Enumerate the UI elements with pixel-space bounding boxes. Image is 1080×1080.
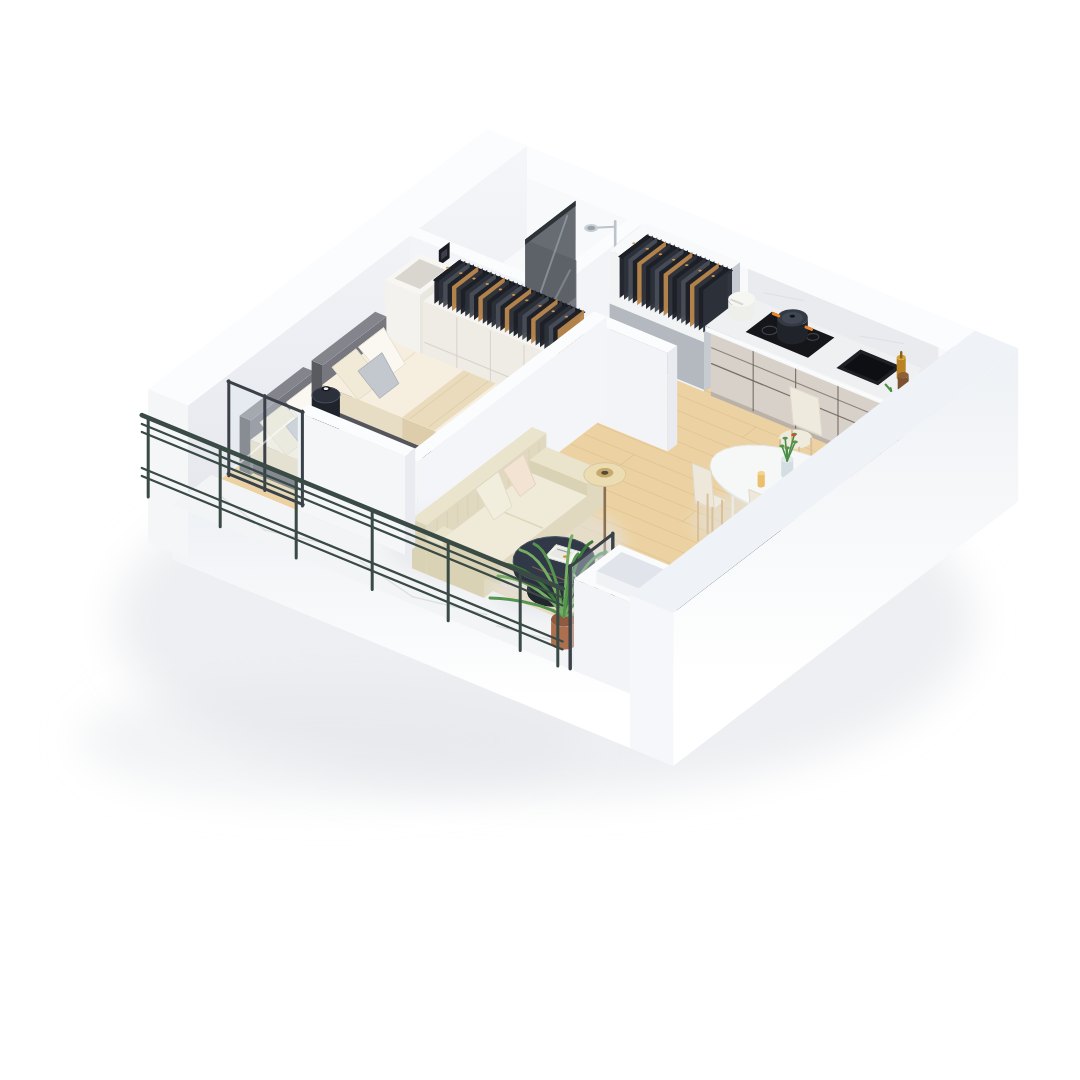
bread-bin (728, 292, 755, 321)
floor-plan-figure (0, 0, 1080, 1080)
cooking-pot (773, 309, 811, 344)
juice-glass (758, 471, 765, 487)
floor-plan-page (0, 0, 1080, 1080)
floor-plan-3d-render (0, 0, 1080, 1080)
